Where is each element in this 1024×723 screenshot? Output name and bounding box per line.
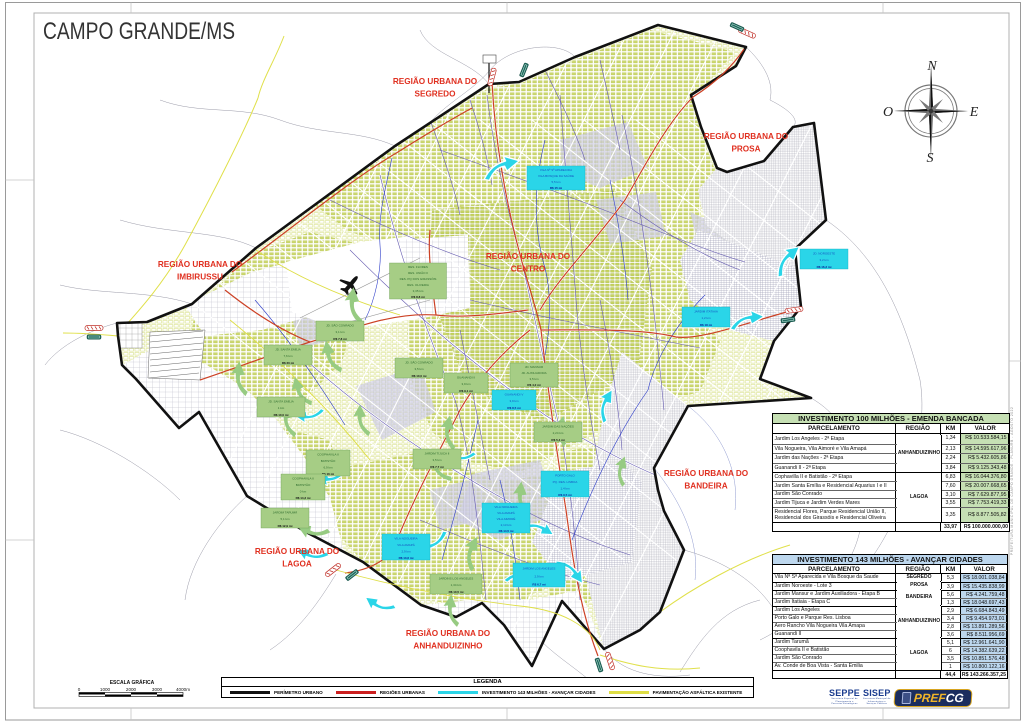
svg-text:5,5 km: 5,5 km [551, 180, 561, 184]
svg-text:JD. SANTA EMÍLIA: JD. SANTA EMÍLIA [275, 348, 301, 352]
svg-text:PREFEITURA MUNICIPAL DE CAMPO: PREFEITURA MUNICIPAL DE CAMPO GRANDE - P… [1010, 407, 1014, 555]
svg-text:5,1 km: 5,1 km [280, 517, 290, 521]
svg-text:R$ 18 mi: R$ 18 mi [700, 323, 713, 327]
svg-text:JARDIM DAS NAÇÕES: JARDIM DAS NAÇÕES [542, 424, 574, 429]
svg-text:RES. UNIÃO II: RES. UNIÃO II [408, 270, 428, 275]
svg-text:SEGREDO: SEGREDO [415, 90, 457, 99]
svg-text:BATISTÃO: BATISTÃO [296, 482, 311, 487]
svg-text:R$ 13,6 mi: R$ 13,6 mi [399, 556, 414, 560]
svg-text:RES. OLIVEIRA: RES. OLIVEIRA [407, 283, 429, 287]
svg-text:2,24 km: 2,24 km [553, 431, 564, 435]
svg-text:PORTO GALO: PORTO GALO [555, 473, 575, 477]
svg-text:R$ 8,5 mi: R$ 8,5 mi [507, 406, 520, 410]
svg-text:R$ 15 mi: R$ 15 mi [550, 186, 563, 190]
svg-text:VILA NOGUEIRA: VILA NOGUEIRA [394, 536, 417, 540]
svg-text:7,6 km: 7,6 km [283, 354, 293, 358]
svg-text:1,2 km: 1,2 km [701, 316, 711, 320]
svg-text:CENTRO: CENTRO [511, 265, 546, 274]
svg-text:3,35 km: 3,35 km [413, 289, 424, 293]
svg-text:R$ 8,8 mi: R$ 8,8 mi [411, 295, 424, 299]
svg-text:0 km: 0 km [300, 489, 307, 493]
svg-text:N: N [926, 59, 937, 74]
svg-text:R$ 20 mi: R$ 20 mi [282, 361, 295, 365]
svg-text:VILA Nª Sª APARECIDA: VILA Nª Sª APARECIDA [540, 168, 572, 172]
svg-text:REGIÃO URBANA DO: REGIÃO URBANA DO [704, 131, 789, 141]
svg-text:VILA AMAPÁ: VILA AMAPÁ [497, 511, 515, 515]
svg-text:R$ 14,3 mi: R$ 14,3 mi [296, 496, 311, 500]
svg-text:2,9 km: 2,9 km [534, 575, 544, 579]
svg-text:3,9 km: 3,9 km [461, 382, 471, 386]
svg-text:VILA NOGUEIRA: VILA NOGUEIRA [494, 505, 517, 509]
svg-text:E: E [969, 105, 979, 120]
svg-text:JARDIM TARUMÃ: JARDIM TARUMÃ [273, 510, 297, 515]
svg-text:IMBIRUSSU: IMBIRUSSU [177, 273, 223, 282]
svg-text:JD. NOROESTE: JD. NOROESTE [813, 252, 835, 256]
svg-text:3,2 km: 3,2 km [819, 258, 829, 262]
svg-text:VILA AIMORÉ: VILA AIMORÉ [497, 516, 516, 521]
svg-text:R$ 7,8 mi: R$ 7,8 mi [333, 337, 346, 341]
svg-text:REGIÃO URBANA DO: REGIÃO URBANA DO [406, 628, 491, 638]
svg-text:6,9 km: 6,9 km [323, 465, 333, 469]
svg-text:PQ. RES. LISBOA: PQ. RES. LISBOA [553, 480, 578, 484]
svg-text:R$ 16,3 mi: R$ 16,3 mi [817, 265, 832, 269]
svg-text:VILA AMAPÁ: VILA AMAPÁ [397, 543, 415, 547]
svg-text:JD. SANTA EMÍLIA: JD. SANTA EMÍLIA [268, 400, 294, 404]
svg-text:3,5 km: 3,5 km [432, 458, 442, 462]
svg-text:COOPHAVILA II: COOPHAVILA II [317, 452, 339, 456]
svg-text:R$ 14,5 mi: R$ 14,5 mi [499, 529, 514, 533]
svg-text:REGIÃO URBANA DO: REGIÃO URBANA DO [158, 259, 243, 269]
svg-text:PROSA: PROSA [731, 145, 760, 154]
svg-text:JARDINS LOS ANGELES: JARDINS LOS ANGELES [439, 577, 474, 581]
svg-text:BATISTÃO: BATISTÃO [321, 458, 336, 463]
svg-text:COOPHAVILA II: COOPHAVILA II [292, 476, 314, 480]
svg-text:3,1 km: 3,1 km [335, 330, 345, 334]
svg-text:BANDEIRA: BANDEIRA [684, 482, 727, 491]
svg-text:RES. FLORES: RES. FLORES [408, 265, 428, 269]
svg-text:RES. PQ DOS GIRASSÓIS: RES. PQ DOS GIRASSÓIS [400, 276, 437, 281]
svg-text:R$ 10,0 mi: R$ 10,0 mi [412, 374, 427, 378]
svg-text:1,4 km: 1,4 km [560, 486, 570, 490]
svg-text:VILA BOSQUE DA SAÚDE: VILA BOSQUE DA SAÚDE [538, 173, 574, 178]
svg-text:2,9 km: 2,9 km [401, 549, 411, 553]
svg-text:REGIÃO URBANA DO: REGIÃO URBANA DO [255, 546, 340, 556]
svg-text:R$ 10,0 mi: R$ 10,0 mi [274, 413, 289, 417]
svg-text:1,34 km: 1,34 km [451, 583, 462, 587]
svg-text:GUANANDI II: GUANANDI II [457, 376, 476, 380]
svg-text:JARDIM ITATIAIA: JARDIM ITATIAIA [694, 310, 718, 314]
svg-text:R$ 9,1 mi: R$ 9,1 mi [459, 389, 472, 393]
svg-text:1 km: 1 km [278, 406, 285, 410]
svg-text:R$ 9,5 mi: R$ 9,5 mi [558, 493, 571, 497]
svg-text:3,5 km: 3,5 km [529, 377, 539, 381]
svg-text:GUANANDI V: GUANANDI V [505, 393, 524, 397]
svg-text:JARDIM LOS ANGELES: JARDIM LOS ANGELES [523, 567, 556, 571]
svg-text:R$ 4,2 mi: R$ 4,2 mi [527, 383, 540, 387]
svg-text:JD. SÃO CONRADO: JD. SÃO CONRADO [326, 323, 355, 328]
svg-text:O: O [883, 105, 893, 120]
svg-text:R$ 12,9 mi: R$ 12,9 mi [278, 524, 293, 528]
svg-text:JARDIM TIJUCA II: JARDIM TIJUCA II [425, 452, 450, 456]
svg-text:LAGOA: LAGOA [282, 560, 312, 569]
svg-text:REGIÃO URBANA DO: REGIÃO URBANA DO [664, 468, 749, 478]
svg-text:JD. MANSUR: JD. MANSUR [525, 365, 544, 369]
svg-text:3,5 km: 3,5 km [414, 367, 424, 371]
svg-text:S: S [927, 151, 934, 166]
svg-text:ANHANDUIZINHO: ANHANDUIZINHO [413, 642, 483, 651]
svg-text:JD. SÃO CONRADO: JD. SÃO CONRADO [405, 360, 434, 365]
svg-text:R$ 10,5 mi: R$ 10,5 mi [449, 590, 464, 594]
svg-text:3,9 km: 3,9 km [509, 399, 519, 403]
svg-text:JD. AUXILIADORA: JD. AUXILIADORA [521, 371, 546, 375]
svg-text:R$ 6,7 mi: R$ 6,7 mi [532, 583, 545, 587]
svg-text:R$ 7,7 mi: R$ 7,7 mi [430, 465, 443, 469]
svg-text:REGIÃO URBANA DO: REGIÃO URBANA DO [486, 251, 571, 261]
svg-text:R$ 5,4 mi: R$ 5,4 mi [551, 438, 564, 442]
svg-text:2,13 km: 2,13 km [501, 523, 512, 527]
svg-text:REGIÃO URBANA DO: REGIÃO URBANA DO [393, 76, 478, 86]
